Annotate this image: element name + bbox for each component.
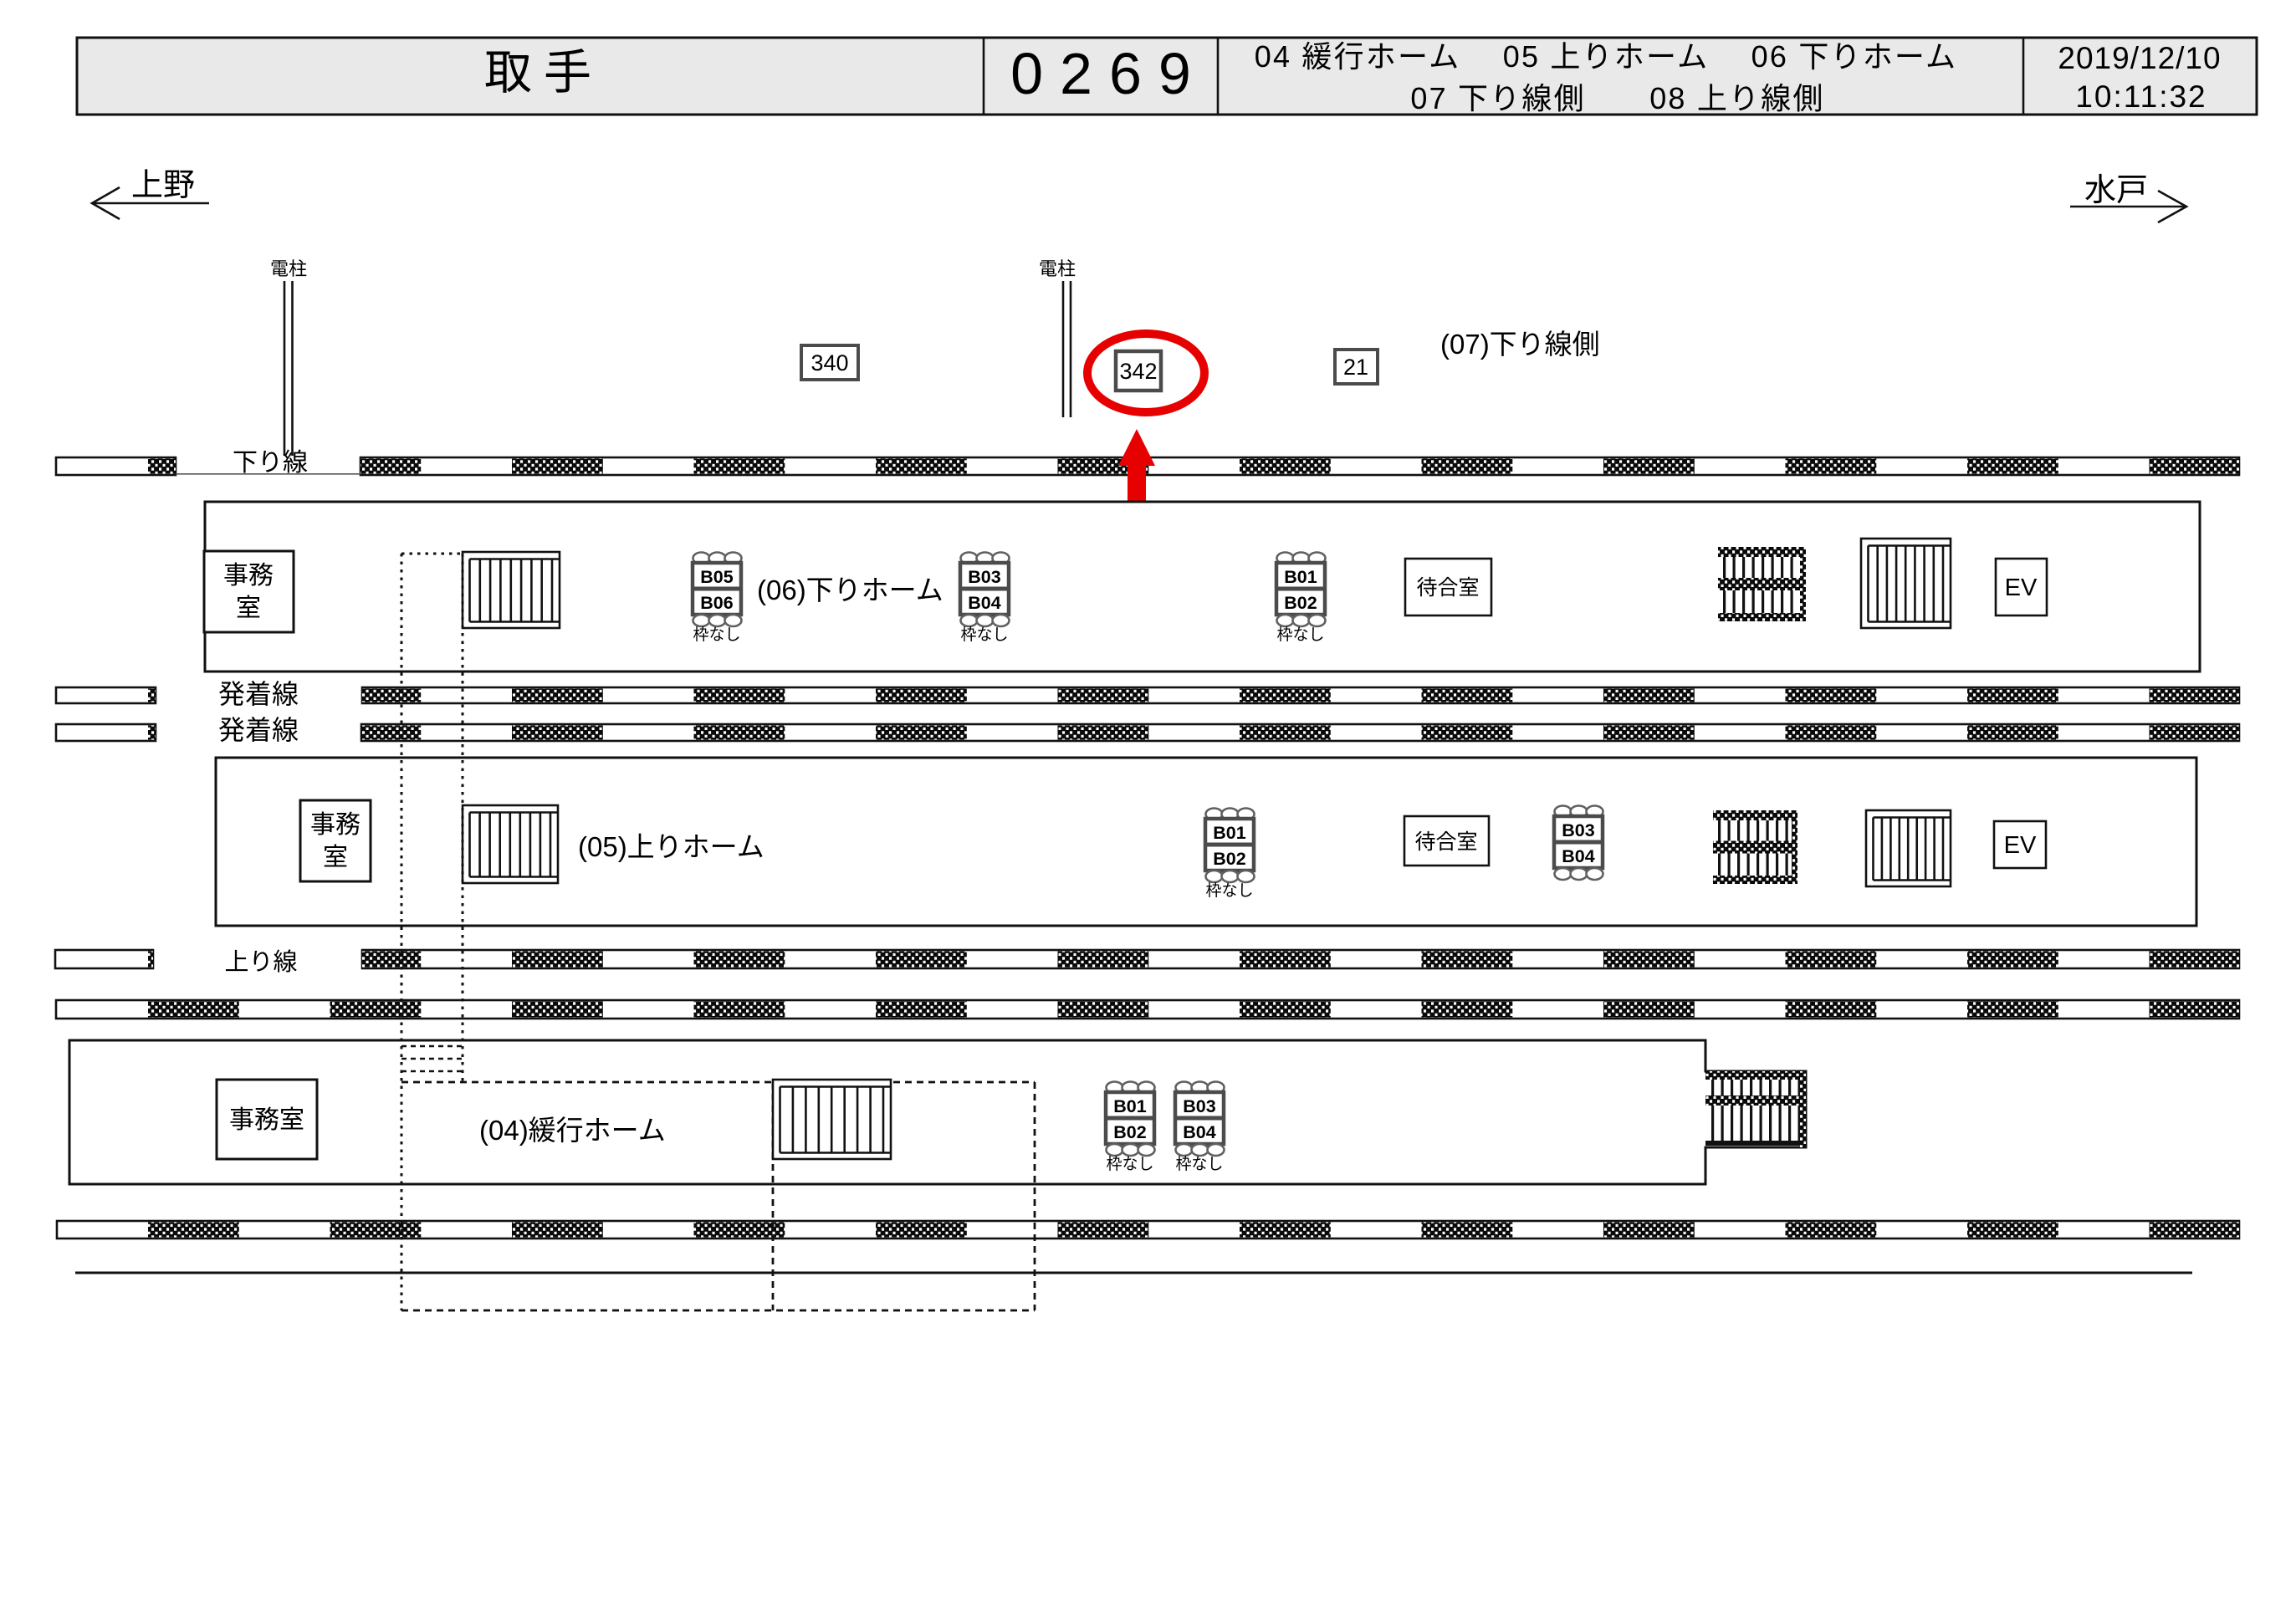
svg-text:342: 342 xyxy=(1119,359,1157,384)
svg-text:枠なし: 枠なし xyxy=(1205,881,1253,900)
svg-text:事務: 事務 xyxy=(310,811,361,839)
svg-text:発着線: 発着線 xyxy=(218,715,299,745)
svg-text:取手: 取手 xyxy=(484,46,603,100)
svg-text:待合室: 待合室 xyxy=(1416,576,1479,600)
svg-text:B04: B04 xyxy=(1183,1122,1215,1142)
svg-text:340: 340 xyxy=(811,350,848,375)
svg-text:B02: B02 xyxy=(1213,849,1245,869)
svg-text:EV: EV xyxy=(2004,832,2037,859)
svg-text:枠なし: 枠なし xyxy=(1175,1155,1223,1173)
svg-text:水戸: 水戸 xyxy=(2084,173,2148,208)
svg-text:室: 室 xyxy=(323,844,348,871)
svg-text:待合室: 待合室 xyxy=(1414,830,1477,854)
svg-text:10:11:32: 10:11:32 xyxy=(2075,79,2207,114)
svg-text:室: 室 xyxy=(236,595,261,622)
svg-text:EV: EV xyxy=(2005,575,2038,601)
svg-text:04 緩行ホーム 05 上りホーム 06 下りホーム: 04 緩行ホーム 05 上りホーム 06 下りホーム xyxy=(1255,39,1958,74)
svg-text:B03: B03 xyxy=(1183,1096,1215,1116)
svg-text:枠なし: 枠なし xyxy=(1276,626,1324,644)
svg-text:上り線: 上り線 xyxy=(224,948,297,976)
svg-text:(05)上りホーム: (05)上りホーム xyxy=(578,831,764,862)
svg-text:事務室: 事務室 xyxy=(229,1106,304,1134)
svg-text:(04)緩行ホーム: (04)緩行ホーム xyxy=(479,1115,666,1146)
svg-text:B04: B04 xyxy=(968,593,1000,613)
svg-text:B05: B05 xyxy=(700,567,733,587)
svg-text:上野: 上野 xyxy=(131,168,195,203)
svg-text:21: 21 xyxy=(1343,355,1368,380)
svg-text:2019/12/10: 2019/12/10 xyxy=(2058,41,2221,75)
svg-text:B03: B03 xyxy=(1562,820,1594,840)
svg-text:枠なし: 枠なし xyxy=(960,626,1008,644)
svg-text:B06: B06 xyxy=(700,593,733,613)
svg-text:電柱: 電柱 xyxy=(270,258,307,279)
svg-text:B03: B03 xyxy=(968,567,1000,587)
svg-text:(07)下り線側: (07)下り線側 xyxy=(1440,329,1600,360)
svg-text:B01: B01 xyxy=(1113,1096,1146,1116)
svg-text:枠なし: 枠なし xyxy=(1106,1155,1153,1173)
svg-text:B01: B01 xyxy=(1284,567,1317,587)
svg-text:(06)下りホーム: (06)下りホーム xyxy=(757,575,943,605)
svg-text:枠なし: 枠なし xyxy=(693,626,740,644)
svg-text:事務: 事務 xyxy=(223,562,274,590)
svg-text:0269: 0269 xyxy=(1010,41,1208,106)
svg-text:電柱: 電柱 xyxy=(1039,258,1076,279)
svg-text:B01: B01 xyxy=(1213,823,1245,843)
svg-text:B02: B02 xyxy=(1113,1122,1146,1142)
svg-text:07 下り線側 08 上り線側: 07 下り線側 08 上り線側 xyxy=(1410,81,1824,115)
svg-text:発着線: 発着線 xyxy=(218,679,299,709)
svg-text:B02: B02 xyxy=(1284,593,1317,613)
svg-text:下り線: 下り線 xyxy=(233,449,308,477)
svg-text:B04: B04 xyxy=(1562,846,1594,866)
